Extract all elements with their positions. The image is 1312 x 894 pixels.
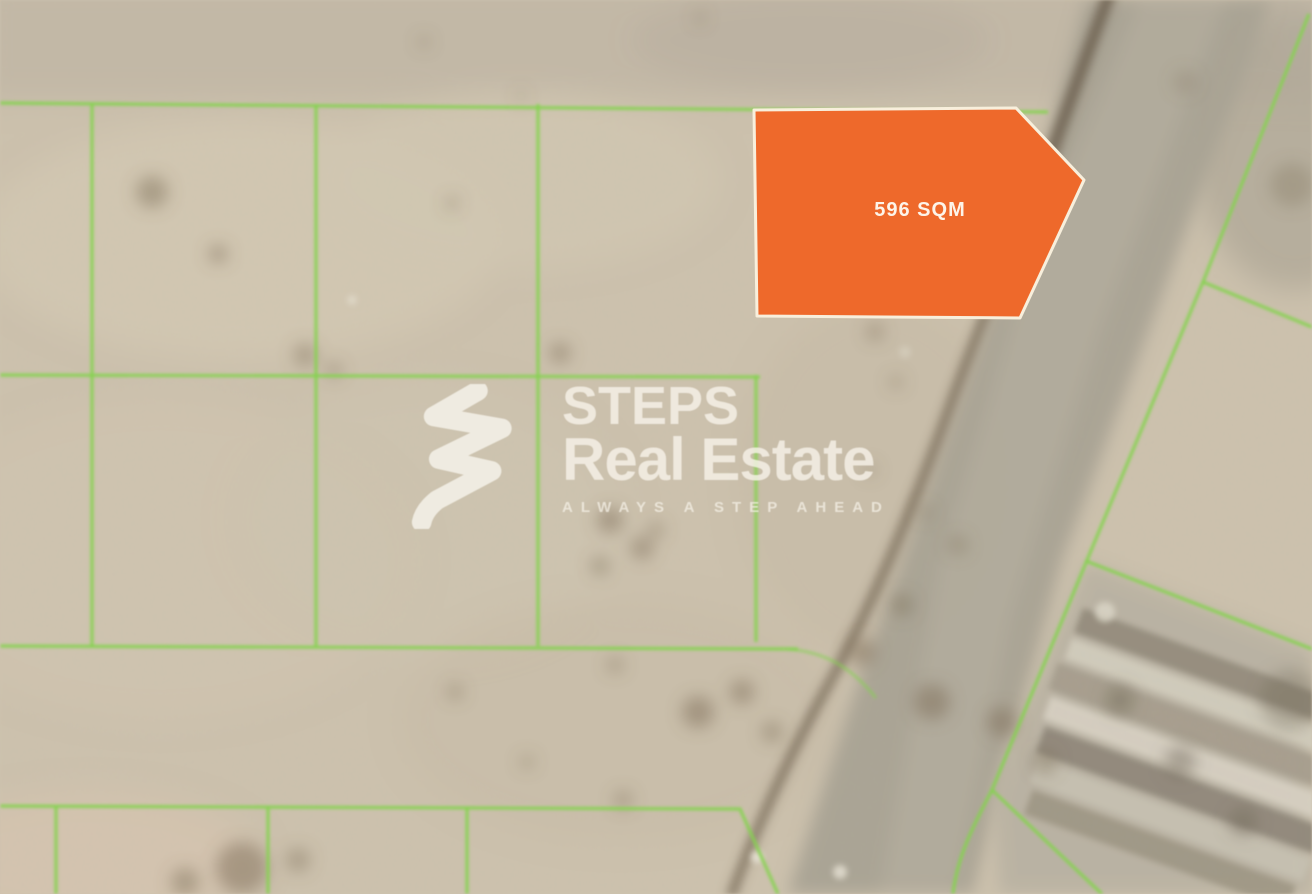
parcel-area-label: 596 SQM — [740, 199, 1100, 222]
map-canvas: 596 SQM STEPS Real Estate ALWAYS A STEP … — [0, 0, 1312, 894]
parcel-highlight: 596 SQM — [740, 94, 1100, 334]
satellite-background — [0, 0, 1312, 894]
